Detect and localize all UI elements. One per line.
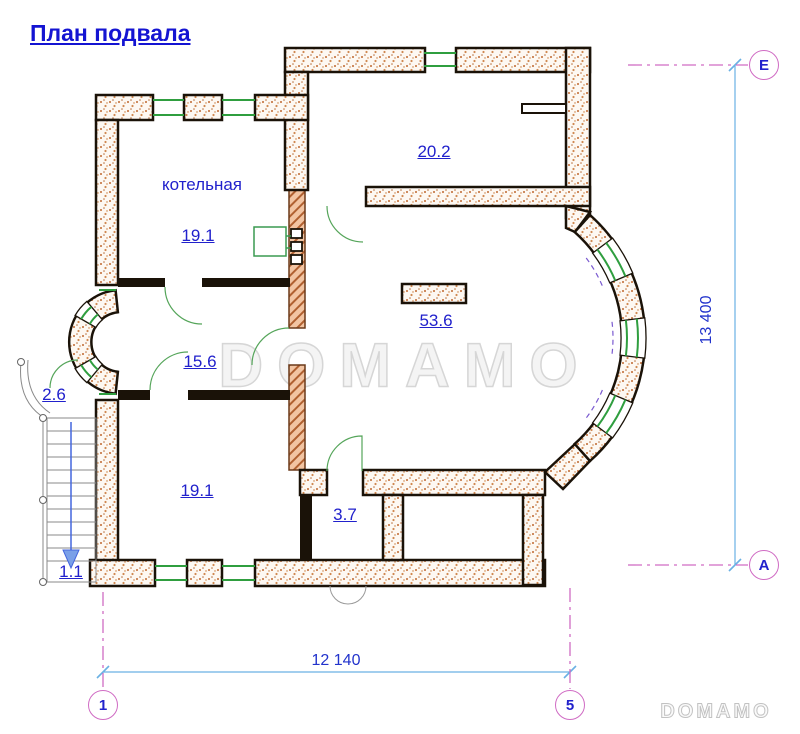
room-label-boiler-name: котельная (162, 175, 242, 195)
axis-marker-5: 5 (555, 690, 585, 720)
page-title[interactable]: План подвала (30, 20, 190, 47)
left-bay-wall (69, 290, 118, 393)
brand-logo: DOMAMO (660, 701, 771, 724)
interior-walls (118, 278, 312, 560)
room-area-corridor: 15.6 (183, 352, 216, 372)
room-area-bottom: 19.1 (180, 481, 213, 501)
room-area-main: 53.6 (419, 311, 452, 331)
room-area-small: 3.7 (333, 505, 357, 525)
bay-window-openings (75, 238, 646, 438)
axis-marker-a: А (749, 550, 779, 580)
axis-marker-e: Е (749, 50, 779, 80)
wall-shelf-stub (522, 104, 566, 113)
exterior-walls (69, 48, 645, 586)
flue-openings (291, 229, 302, 264)
room-area-top: 20.2 (417, 142, 450, 162)
boiler-symbol (254, 227, 291, 256)
room-area-porch: 2.6 (42, 385, 66, 405)
windows (81, 53, 638, 580)
room-area-stair: 1.1 (59, 562, 83, 582)
room-area-boiler: 19.1 (181, 226, 214, 246)
floor-plan-page: DOMAMO (0, 0, 800, 734)
column (402, 284, 466, 303)
dimension-width: 12 140 (312, 652, 361, 670)
floor-plan-drawing (0, 0, 800, 734)
dimension-height: 13 400 (698, 296, 716, 345)
axis-marker-1: 1 (88, 690, 118, 720)
